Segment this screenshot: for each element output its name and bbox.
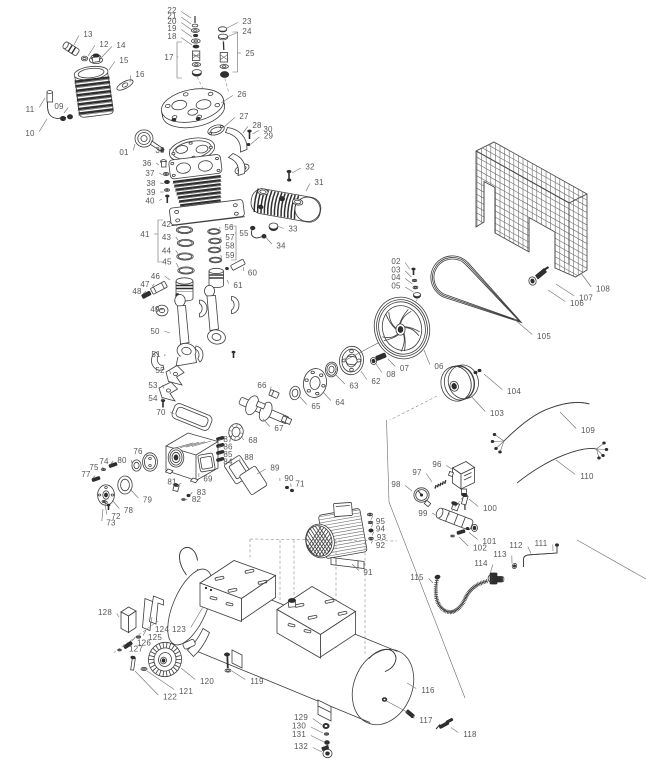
svg-text:84: 84 [223, 458, 233, 467]
svg-text:29: 29 [264, 132, 274, 141]
svg-text:06: 06 [434, 362, 444, 371]
svg-text:31: 31 [314, 178, 324, 187]
svg-text:08: 08 [386, 370, 396, 379]
svg-text:118: 118 [463, 730, 477, 739]
svg-text:33: 33 [288, 225, 298, 234]
svg-text:27: 27 [239, 112, 249, 121]
svg-text:77: 77 [81, 470, 91, 479]
svg-text:120: 120 [200, 677, 214, 686]
svg-text:25: 25 [245, 49, 255, 58]
svg-text:103: 103 [490, 409, 504, 418]
svg-text:75: 75 [89, 463, 99, 472]
svg-text:116: 116 [421, 686, 435, 695]
svg-text:65: 65 [311, 402, 321, 411]
svg-text:36: 36 [142, 159, 152, 168]
svg-text:96: 96 [432, 460, 442, 469]
svg-text:50: 50 [150, 327, 160, 336]
svg-text:54: 54 [148, 394, 158, 403]
svg-text:110: 110 [580, 472, 594, 481]
svg-text:111: 111 [535, 539, 548, 548]
svg-text:07: 07 [400, 364, 410, 373]
svg-text:10: 10 [25, 129, 35, 138]
svg-text:99: 99 [418, 509, 428, 518]
svg-text:13: 13 [83, 30, 93, 39]
svg-text:102: 102 [473, 544, 487, 553]
svg-text:68: 68 [248, 436, 258, 445]
svg-text:98: 98 [391, 480, 401, 489]
svg-text:108: 108 [596, 285, 610, 294]
svg-text:66: 66 [257, 381, 267, 390]
svg-text:76: 76 [133, 447, 143, 456]
svg-text:89: 89 [270, 464, 280, 473]
svg-text:78: 78 [124, 506, 134, 515]
svg-text:123: 123 [172, 625, 186, 634]
svg-text:113: 113 [493, 550, 507, 559]
svg-text:17: 17 [164, 53, 174, 62]
svg-text:132: 132 [294, 742, 308, 751]
svg-text:12: 12 [99, 40, 109, 49]
svg-text:18: 18 [167, 32, 177, 41]
svg-text:92: 92 [376, 541, 386, 550]
svg-text:44: 44 [162, 247, 172, 256]
svg-text:100: 100 [483, 504, 497, 513]
svg-text:37: 37 [145, 169, 155, 178]
svg-text:90: 90 [284, 474, 294, 483]
svg-text:63: 63 [349, 382, 359, 391]
svg-text:71: 71 [295, 480, 305, 489]
svg-text:40: 40 [145, 197, 155, 206]
svg-text:15: 15 [119, 56, 129, 65]
svg-text:52: 52 [155, 366, 165, 375]
svg-text:81: 81 [167, 478, 177, 487]
svg-text:51: 51 [151, 350, 161, 359]
svg-text:82: 82 [192, 495, 202, 504]
svg-text:35: 35 [155, 146, 165, 155]
svg-text:109: 109 [581, 426, 595, 435]
svg-text:59: 59 [225, 251, 235, 260]
svg-text:114: 114 [474, 559, 488, 568]
svg-text:24: 24 [242, 27, 252, 36]
svg-text:47: 47 [140, 280, 150, 289]
svg-text:48: 48 [132, 287, 142, 296]
svg-text:131: 131 [292, 730, 306, 739]
svg-text:117: 117 [419, 716, 433, 725]
svg-text:23: 23 [242, 17, 252, 26]
svg-text:97: 97 [412, 468, 422, 477]
svg-text:58: 58 [225, 242, 235, 251]
svg-text:121: 121 [179, 687, 193, 696]
svg-text:56: 56 [224, 223, 234, 232]
svg-text:34: 34 [276, 242, 286, 251]
svg-text:53: 53 [148, 381, 158, 390]
svg-text:64: 64 [335, 398, 345, 407]
svg-text:60: 60 [248, 269, 258, 278]
svg-text:49: 49 [150, 305, 160, 314]
svg-text:128: 128 [98, 608, 112, 617]
svg-text:95: 95 [376, 517, 386, 526]
svg-text:104: 104 [507, 387, 521, 396]
svg-text:112: 112 [509, 541, 523, 550]
svg-text:28: 28 [252, 121, 262, 130]
svg-text:41: 41 [140, 230, 150, 239]
svg-text:26: 26 [237, 90, 247, 99]
svg-text:79: 79 [143, 496, 153, 505]
svg-text:32: 32 [305, 163, 315, 172]
svg-text:38: 38 [146, 179, 156, 188]
svg-text:105: 105 [537, 332, 551, 341]
svg-text:16: 16 [135, 70, 145, 79]
svg-text:88: 88 [244, 453, 254, 462]
svg-text:42: 42 [162, 220, 172, 229]
svg-text:67: 67 [274, 424, 284, 433]
svg-text:45: 45 [162, 258, 172, 267]
svg-text:01: 01 [119, 148, 129, 157]
svg-text:05: 05 [391, 282, 401, 291]
svg-text:61: 61 [233, 281, 243, 290]
svg-text:69: 69 [203, 475, 213, 484]
svg-text:43: 43 [162, 233, 172, 242]
svg-text:107: 107 [579, 294, 593, 303]
svg-text:73: 73 [106, 519, 116, 528]
svg-text:46: 46 [151, 272, 161, 281]
svg-text:55: 55 [239, 229, 249, 238]
svg-text:127: 127 [129, 645, 143, 654]
svg-text:70: 70 [156, 408, 166, 417]
svg-text:14: 14 [116, 41, 126, 50]
svg-text:80: 80 [117, 456, 127, 465]
svg-text:74: 74 [99, 457, 109, 466]
svg-text:119: 119 [250, 677, 264, 686]
svg-text:122: 122 [163, 693, 177, 702]
svg-text:09: 09 [54, 102, 64, 111]
svg-text:11: 11 [26, 105, 35, 114]
svg-text:62: 62 [371, 377, 381, 386]
